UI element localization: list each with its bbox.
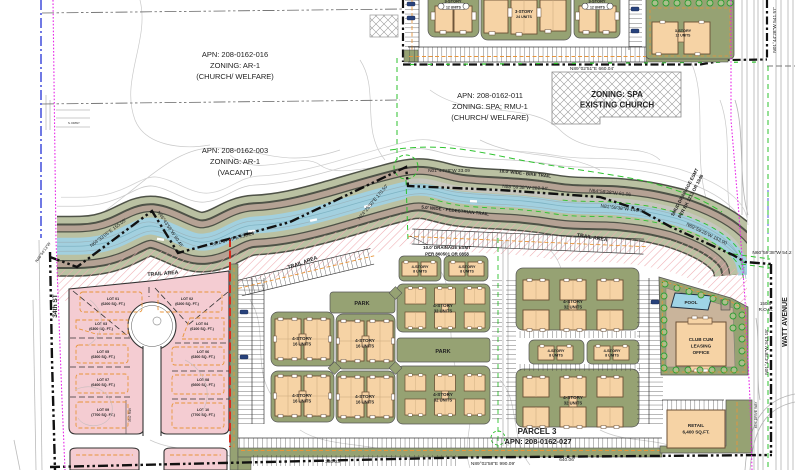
svg-text:APN: 208-0162-016: APN: 208-0162-016 <box>202 50 268 59</box>
svg-text:35.0' R/W: 35.0' R/W <box>128 408 132 422</box>
svg-text:4-STORY: 4-STORY <box>563 299 583 304</box>
svg-text:ZONING: AR-1: ZONING: AR-1 <box>210 157 260 166</box>
svg-text:34th ST: 34th ST <box>52 294 59 318</box>
svg-text:4-STORY: 4-STORY <box>292 336 312 341</box>
svg-text:4-STORY: 4-STORY <box>458 264 475 269</box>
svg-text:WATT AVENUE: WATT AVENUE <box>782 297 789 347</box>
svg-text:(CHURCH/ WELFARE): (CHURCH/ WELFARE) <box>451 113 529 122</box>
svg-text:(6100 SQ. FT.): (6100 SQ. FT.) <box>190 327 214 331</box>
svg-text:(VACANT): (VACANT) <box>218 168 253 177</box>
svg-text:8 UNITS: 8 UNITS <box>413 270 427 274</box>
svg-text:(6600 SQ. FT.): (6600 SQ. FT.) <box>191 383 215 387</box>
svg-text:3-STORY: 3-STORY <box>675 29 692 33</box>
svg-text:N01°44'28"W 343.18': N01°44'28"W 343.18' <box>764 329 770 375</box>
svg-text:32 UNITS: 32 UNITS <box>434 398 453 403</box>
svg-text:LOT 02: LOT 02 <box>181 297 193 301</box>
svg-text:(6400 SQ. FT.): (6400 SQ. FT.) <box>91 383 115 387</box>
svg-text:N01°44'28"W 33.09: N01°44'28"W 33.09 <box>428 168 470 174</box>
svg-text:(6300 SQ. FT.): (6300 SQ. FT.) <box>191 355 215 359</box>
svg-text:N89°02'58"E 990.09': N89°02'58"E 990.09' <box>471 461 515 467</box>
svg-text:32 UNITS: 32 UNITS <box>434 309 453 314</box>
svg-text:POOL: POOL <box>684 300 697 305</box>
svg-text:ZONING: AR-1: ZONING: AR-1 <box>210 61 260 70</box>
svg-text:45.0' DRIVE WAY: 45.0' DRIVE WAY <box>754 401 758 429</box>
svg-text:4-STORY: 4-STORY <box>563 395 583 400</box>
svg-text:12 UNITS: 12 UNITS <box>590 5 606 9</box>
svg-text:APN: 208-0162-011: APN: 208-0162-011 <box>457 91 523 100</box>
svg-text:4-STORY: 4-STORY <box>411 264 428 269</box>
svg-text:16 UNITS: 16 UNITS <box>356 344 375 349</box>
svg-text:4-STORY: 4-STORY <box>547 348 564 353</box>
svg-text:16 UNITS: 16 UNITS <box>356 400 375 405</box>
svg-text:APN: 208-0162-003: APN: 208-0162-003 <box>202 146 268 155</box>
svg-text:PER 860501 OR 0858: PER 860501 OR 0858 <box>425 252 469 257</box>
svg-text:(6200 SQ. FT.): (6200 SQ. FT.) <box>101 302 125 306</box>
svg-text:ZONING: SPA: ZONING: SPA <box>591 90 643 99</box>
svg-text:(6300 SQ. FT.): (6300 SQ. FT.) <box>89 327 113 331</box>
svg-text:OFFICE: OFFICE <box>693 350 710 355</box>
svg-text:3-STORY: 3-STORY <box>515 9 533 14</box>
svg-text:CLUB CUM: CLUB CUM <box>689 337 714 342</box>
svg-text:N60°59'38"W 54.2: N60°59'38"W 54.2 <box>752 250 792 256</box>
svg-text:LOT 07: LOT 07 <box>97 378 109 382</box>
svg-text:4-STORY: 4-STORY <box>603 348 620 353</box>
svg-text:ZONING: SPA; RMU-1: ZONING: SPA; RMU-1 <box>452 102 528 111</box>
svg-text:LEASING: LEASING <box>691 344 712 349</box>
svg-text:4-STORY: 4-STORY <box>355 394 375 399</box>
svg-text:16 UNITS: 16 UNITS <box>293 399 312 404</box>
svg-text:32 UNITS: 32 UNITS <box>564 401 583 406</box>
svg-text:EXISTING CHURCH: EXISTING CHURCH <box>580 101 654 110</box>
svg-text:APN: 208-0162-027: APN: 208-0162-027 <box>504 437 571 446</box>
svg-text:8 UNITS: 8 UNITS <box>460 270 474 274</box>
svg-text:4-STORY: 4-STORY <box>355 338 375 343</box>
svg-text:150.0': 150.0' <box>760 301 772 306</box>
svg-text:LOT 06: LOT 06 <box>197 350 209 354</box>
svg-text:(7700 SQ. FT.): (7700 SQ. FT.) <box>191 413 215 417</box>
svg-text:8 UNITS: 8 UNITS <box>549 354 563 358</box>
svg-text:12 UNITS: 12 UNITS <box>446 5 462 9</box>
svg-text:PARCEL 3: PARCEL 3 <box>518 427 557 436</box>
svg-text:4-STORY: 4-STORY <box>433 392 453 397</box>
svg-text:12 UNITS: 12 UNITS <box>676 34 692 38</box>
svg-text:640.06': 640.06' <box>559 457 575 463</box>
svg-text:PARK: PARK <box>354 301 369 307</box>
svg-text:LOT 04: LOT 04 <box>196 322 208 326</box>
svg-text:LOT 01: LOT 01 <box>107 297 119 301</box>
svg-text:8 UNITS: 8 UNITS <box>605 354 619 358</box>
svg-text:24 UNITS: 24 UNITS <box>516 15 532 19</box>
svg-text:(6300 SQ. FT.): (6300 SQ. FT.) <box>91 355 115 359</box>
svg-text:N89°02'51"E 660.04': N89°02'51"E 660.04' <box>570 66 614 72</box>
svg-text:N01°44'28"W 541.57': N01°44'28"W 541.57' <box>772 7 778 53</box>
svg-text:330.03': 330.03' <box>325 459 341 465</box>
svg-text:32 UNITS: 32 UNITS <box>564 305 583 310</box>
svg-text:16 UNITS: 16 UNITS <box>293 342 312 347</box>
svg-text:4-STORY: 4-STORY <box>292 393 312 398</box>
svg-text:PARK: PARK <box>435 349 450 355</box>
svg-text:RETAIL: RETAIL <box>688 423 704 428</box>
svg-text:LOT 05: LOT 05 <box>97 350 109 354</box>
svg-text:(6200 SQ. FT.): (6200 SQ. FT.) <box>175 302 199 306</box>
svg-text:6,400 SQ.FT.: 6,400 SQ.FT. <box>682 430 709 435</box>
svg-text:LOT 08: LOT 08 <box>197 378 209 382</box>
svg-text:R.O.W.: R.O.W. <box>759 307 774 312</box>
svg-text:LOT 09: LOT 09 <box>97 408 109 412</box>
svg-text:(CHURCH/ WELFARE): (CHURCH/ WELFARE) <box>196 72 274 81</box>
svg-text:4-STORY: 4-STORY <box>433 303 453 308</box>
svg-text:S. DRWY: S. DRWY <box>68 121 80 125</box>
svg-text:10.0' DRAINAGE ESMT: 10.0' DRAINAGE ESMT <box>423 245 471 250</box>
